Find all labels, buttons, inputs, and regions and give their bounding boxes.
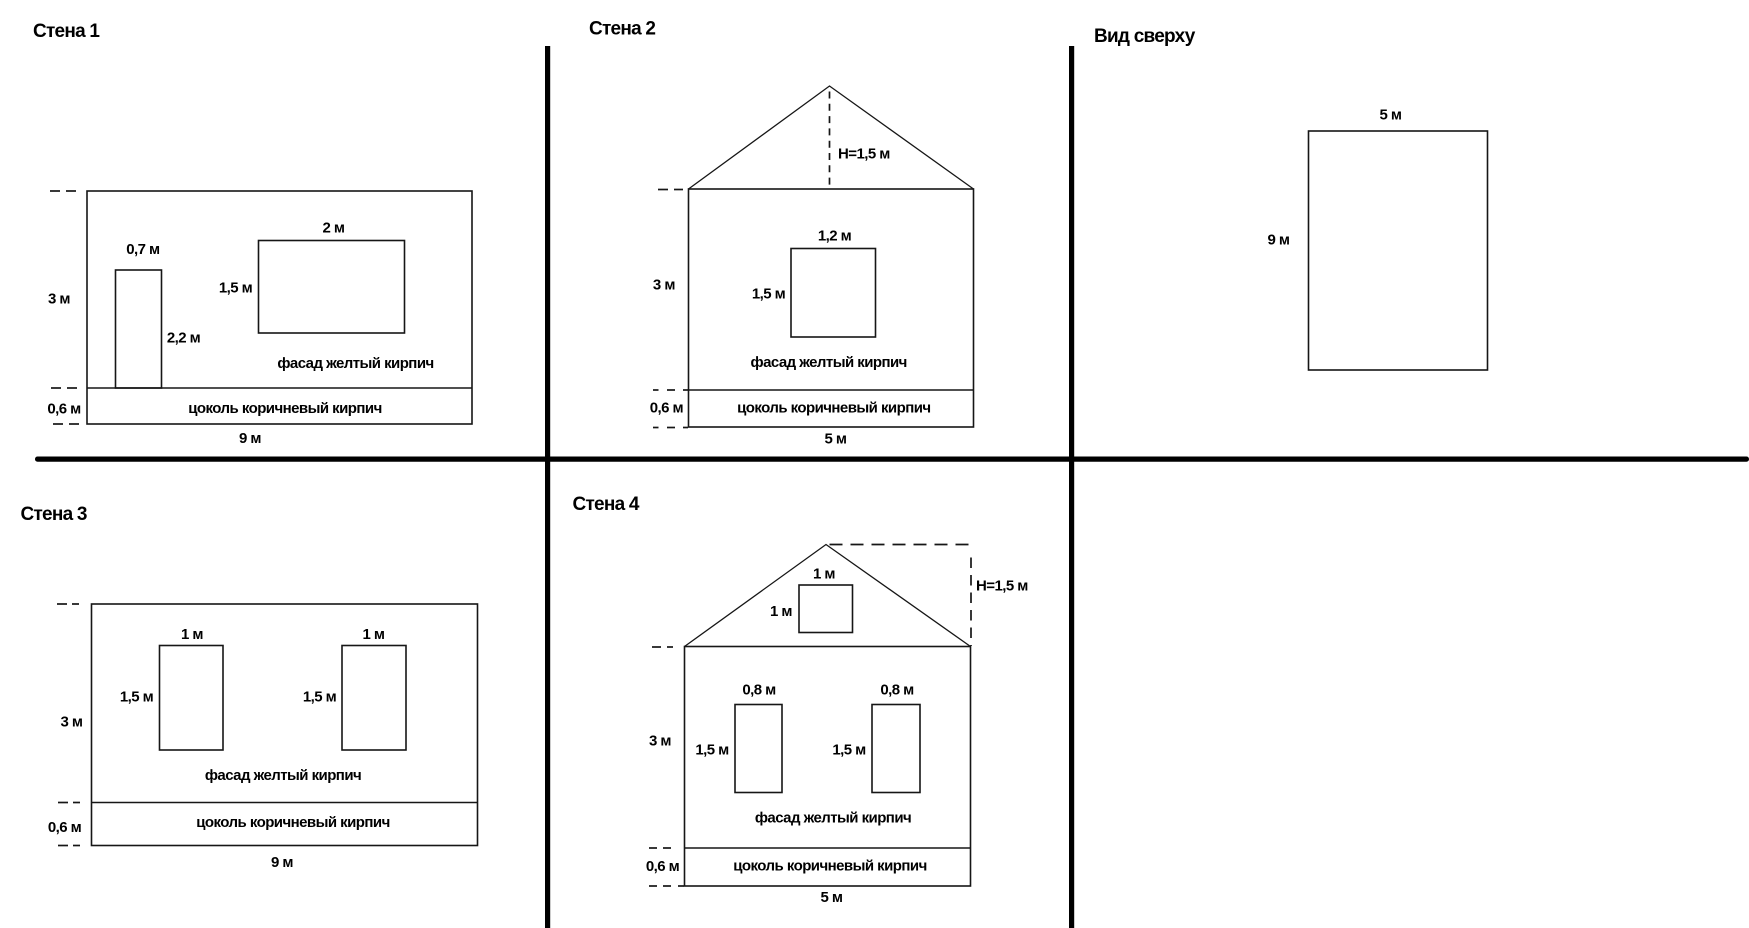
- svg-text:1,5 м: 1,5 м: [695, 742, 729, 759]
- svg-text:5 м: 5 м: [821, 889, 843, 906]
- svg-text:9 м: 9 м: [239, 430, 261, 447]
- svg-text:9 м: 9 м: [271, 854, 293, 871]
- svg-text:0,8 м: 0,8 м: [880, 682, 914, 699]
- svg-text:Н=1,5 м: Н=1,5 м: [838, 146, 890, 163]
- svg-text:фасад желтый кирпич: фасад желтый кирпич: [277, 355, 433, 372]
- svg-text:1,5 м: 1,5 м: [120, 689, 154, 706]
- svg-text:1 м: 1 м: [363, 626, 385, 643]
- svg-text:3 м: 3 м: [61, 714, 83, 731]
- svg-text:1 м: 1 м: [813, 566, 835, 583]
- svg-text:1,5 м: 1,5 м: [303, 689, 337, 706]
- svg-text:1,5 м: 1,5 м: [832, 742, 866, 759]
- svg-text:0,6 м: 0,6 м: [48, 819, 82, 836]
- svg-text:1,2 м: 1,2 м: [818, 228, 852, 245]
- svg-text:Стена 4: Стена 4: [573, 494, 640, 515]
- svg-text:0,8 м: 0,8 м: [742, 682, 776, 699]
- svg-text:1,5 м: 1,5 м: [219, 280, 253, 297]
- svg-text:9 м: 9 м: [1268, 232, 1290, 249]
- svg-text:0,6 м: 0,6 м: [650, 400, 684, 417]
- svg-text:1 м: 1 м: [181, 626, 203, 643]
- svg-text:3 м: 3 м: [649, 733, 671, 750]
- svg-text:цоколь коричневый кирпич: цоколь коричневый кирпич: [188, 400, 381, 417]
- svg-text:фасад желтый кирпич: фасад желтый кирпич: [205, 767, 361, 784]
- svg-text:фасад желтый кирпич: фасад желтый кирпич: [755, 810, 911, 827]
- svg-text:1 м: 1 м: [770, 603, 792, 620]
- svg-text:Вид сверху: Вид сверху: [1094, 26, 1196, 47]
- svg-text:цоколь коричневый кирпич: цоколь коричневый кирпич: [196, 814, 389, 831]
- svg-text:Н=1,5 м: Н=1,5 м: [976, 578, 1028, 595]
- svg-text:Стена 2: Стена 2: [589, 19, 655, 40]
- svg-text:3 м: 3 м: [653, 277, 675, 294]
- svg-text:1,5 м: 1,5 м: [752, 286, 786, 303]
- svg-text:2,2 м: 2,2 м: [167, 330, 201, 347]
- svg-text:0,6 м: 0,6 м: [646, 858, 680, 875]
- svg-text:3 м: 3 м: [48, 291, 70, 308]
- svg-text:Стена 1: Стена 1: [33, 21, 100, 42]
- svg-text:0,6 м: 0,6 м: [47, 401, 81, 418]
- svg-text:фасад желтый кирпич: фасад желтый кирпич: [751, 354, 907, 371]
- svg-text:5 м: 5 м: [825, 431, 847, 448]
- svg-text:5 м: 5 м: [1380, 107, 1402, 124]
- svg-text:2 м: 2 м: [323, 220, 345, 237]
- svg-text:0,7 м: 0,7 м: [126, 241, 160, 258]
- svg-text:Стена 3: Стена 3: [21, 504, 87, 525]
- svg-text:цоколь коричневый кирпич: цоколь коричневый кирпич: [737, 400, 930, 417]
- svg-text:цоколь коричневый кирпич: цоколь коричневый кирпич: [733, 858, 926, 875]
